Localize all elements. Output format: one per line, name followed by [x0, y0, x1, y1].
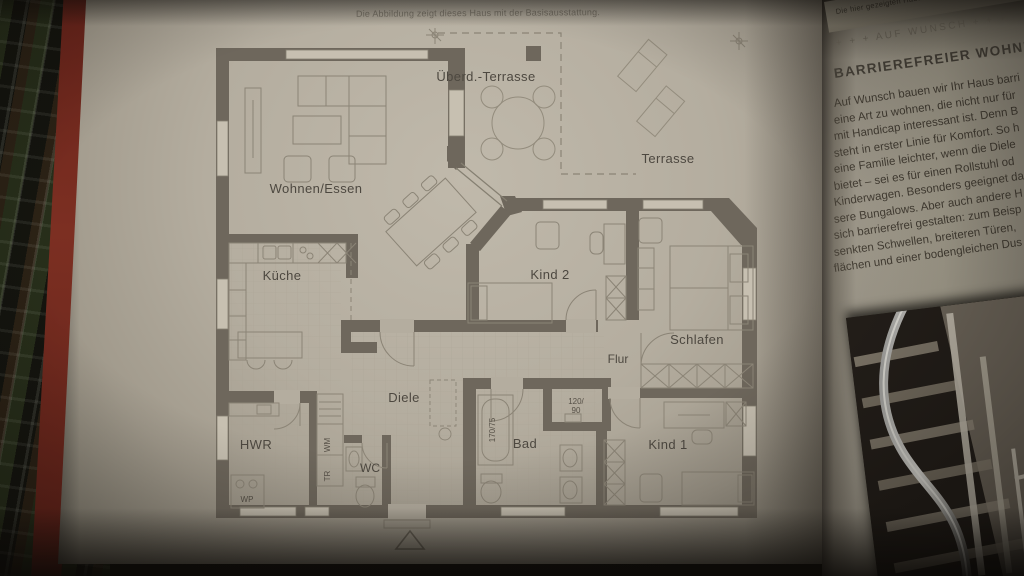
- terrace-table: [481, 86, 555, 160]
- book-left-page: Die Abbildung zeigt dieses Haus mit der …: [58, 0, 838, 564]
- room-label-kind1: Kind 1: [648, 437, 687, 452]
- room-label-kueche: Küche: [263, 268, 302, 283]
- room-label-wohnen: Wohnen/Essen: [270, 181, 363, 196]
- entrance-marker: [396, 531, 424, 549]
- sun-lounger: [637, 86, 685, 137]
- room-label-schlafen: Schlafen: [670, 332, 724, 347]
- room-label-hwr: HWR: [240, 437, 272, 452]
- shower-size-label-2: 90: [572, 406, 581, 415]
- plant-icon: [730, 32, 748, 50]
- room-label-wc: WC: [360, 461, 380, 475]
- stairs-photo: [846, 294, 1024, 576]
- room-label-terrasse: Terrasse: [641, 151, 694, 166]
- plan-caption: Die Abbildung zeigt dieses Haus mit der …: [298, 7, 658, 20]
- plant-icon: [426, 28, 444, 44]
- book-right-page: Die hier gezeigten Häuser verfügen + + +…: [822, 0, 1024, 576]
- room-label-kind2: Kind 2: [530, 267, 569, 282]
- room-label-flur: Flur: [608, 352, 629, 366]
- bathtub-size-label: 170/75: [488, 417, 497, 442]
- washing-machine-label: WM: [323, 438, 332, 453]
- living-room-furniture: [245, 76, 386, 182]
- room-label-ueberd-terrasse: Überd.-Terrasse: [436, 69, 535, 84]
- sun-lounger: [618, 39, 667, 91]
- heat-pump-label: WP: [241, 495, 254, 504]
- diagonal-window: [456, 163, 507, 206]
- room-label-bad: Bad: [513, 436, 537, 451]
- article-body: Auf Wunsch bauen wir Ihr Haus barri eine…: [834, 96, 1024, 278]
- shower-size-label-1: 120/: [568, 397, 584, 406]
- entrance-step: [384, 520, 430, 528]
- floor-plan: Wohnen/Essen Küche Überd.-Terrasse Terra…: [198, 28, 783, 558]
- dryer-label: TR: [323, 470, 332, 481]
- kind1-furniture: [640, 402, 754, 505]
- book-photo: Die Abbildung zeigt dieses Haus mit der …: [0, 0, 1024, 576]
- terrace-post: [526, 46, 541, 61]
- room-label-diele: Diele: [388, 390, 420, 405]
